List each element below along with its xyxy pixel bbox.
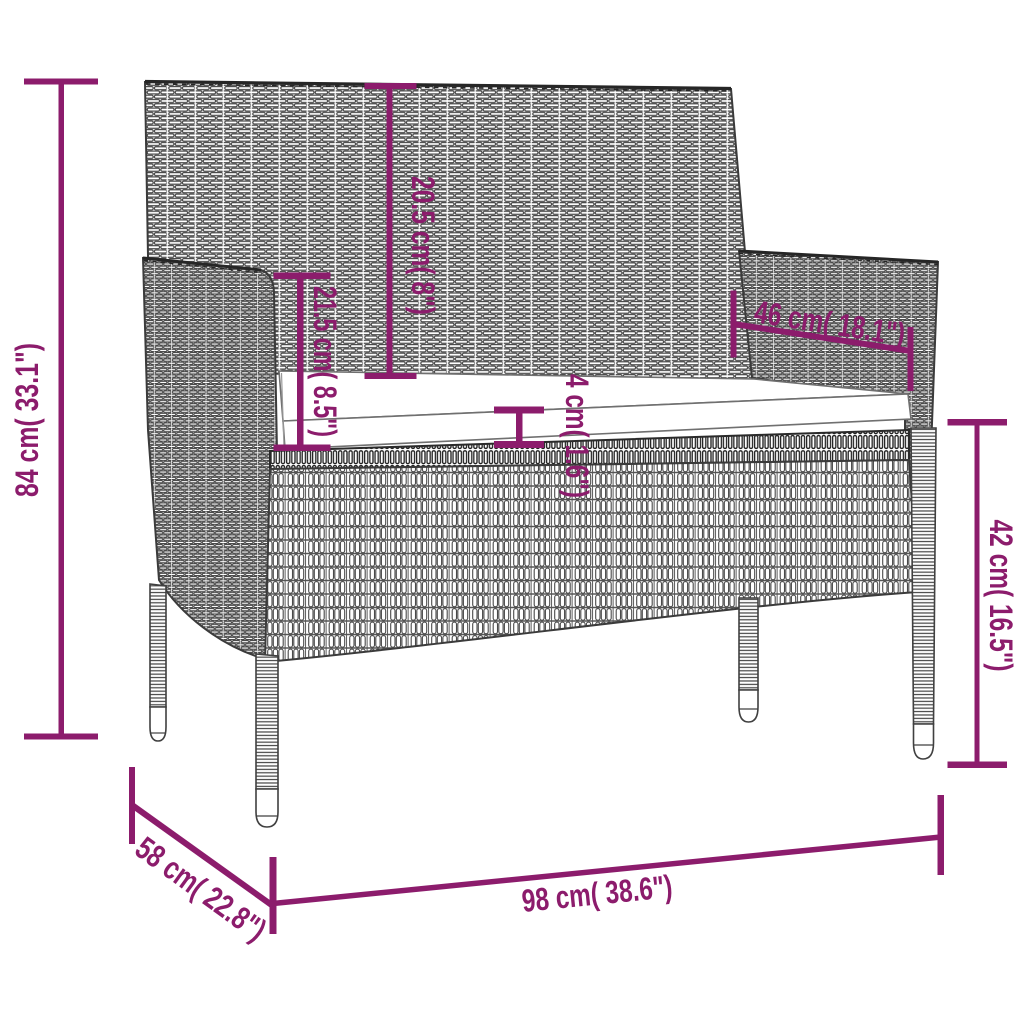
svg-text:21.5 cm( 8.5"): 21.5 cm( 8.5") [307,286,343,437]
svg-text:84 cm( 33.1"): 84 cm( 33.1") [9,343,45,497]
svg-text:20.5 cm( 8"): 20.5 cm( 8") [405,176,441,315]
svg-text:4 cm( 1.6"): 4 cm( 1.6") [559,374,595,498]
svg-text:42 cm( 16.5"): 42 cm( 16.5") [983,520,1019,672]
